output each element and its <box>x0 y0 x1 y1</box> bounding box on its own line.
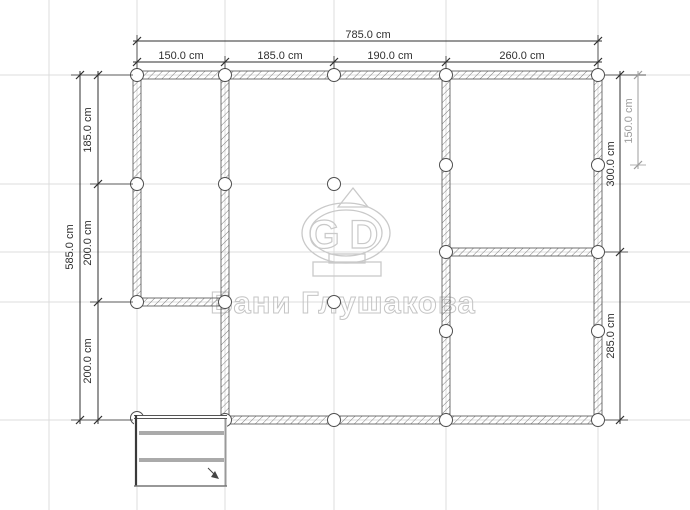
logo-letter-d: D <box>350 213 379 257</box>
pile-circle <box>328 69 341 82</box>
floor-plan-canvas: G D Бани Глушакова <box>0 0 690 510</box>
pile-circle <box>328 296 341 309</box>
wall-bottom <box>221 416 602 424</box>
pile-circle <box>440 325 453 338</box>
dimension-chain-left <box>71 71 133 424</box>
dim-left-segment-label: 200.0 cm <box>82 220 94 265</box>
pile-circle <box>592 246 605 259</box>
dim-top-segment-label: 185.0 cm <box>257 50 302 62</box>
dim-top-overall-label: 785.0 cm <box>345 29 390 41</box>
wall-top <box>133 71 602 79</box>
wall-interior-horizontal-left <box>133 298 229 306</box>
dim-left-segment-label: 185.0 cm <box>82 107 94 152</box>
pile-circle <box>440 246 453 259</box>
logo-base <box>313 262 381 276</box>
pile-circle <box>592 325 605 338</box>
pile-circle <box>592 414 605 427</box>
foundation-plan-drawing: G D Бани Глушакова <box>0 0 690 510</box>
dim-left-overall-label: 585.0 cm <box>64 224 76 269</box>
pile-circle <box>440 69 453 82</box>
pile-circle <box>592 159 605 172</box>
pile-circle <box>592 69 605 82</box>
watermark-logo: G D <box>302 188 390 276</box>
dim-right-segment-label: 300.0 cm <box>605 141 617 186</box>
logo-roof-icon <box>338 188 368 207</box>
pile-circle <box>219 69 232 82</box>
dim-top-segment-label: 190.0 cm <box>367 50 412 62</box>
watermark-text: Бани Глушакова <box>210 285 475 320</box>
wall-interior-horizontal-right <box>442 248 602 256</box>
dim-left-segment-label: 200.0 cm <box>82 338 94 383</box>
dim-top-segment-label: 150.0 cm <box>158 50 203 62</box>
pile-circle <box>440 414 453 427</box>
pile-circle <box>219 178 232 191</box>
wall-interior-vertical-1 <box>221 71 229 424</box>
logo-letter-g: G <box>308 213 339 257</box>
pile-circle <box>440 159 453 172</box>
dim-top-segment-label: 260.0 cm <box>499 50 544 62</box>
pile-circle <box>328 178 341 191</box>
staircase <box>134 415 227 487</box>
pile-circle <box>328 414 341 427</box>
dim-right-pile-offset-label: 150.0 cm <box>623 98 635 143</box>
pile-circle <box>219 296 232 309</box>
dim-right-segment-label: 285.0 cm <box>605 313 617 358</box>
